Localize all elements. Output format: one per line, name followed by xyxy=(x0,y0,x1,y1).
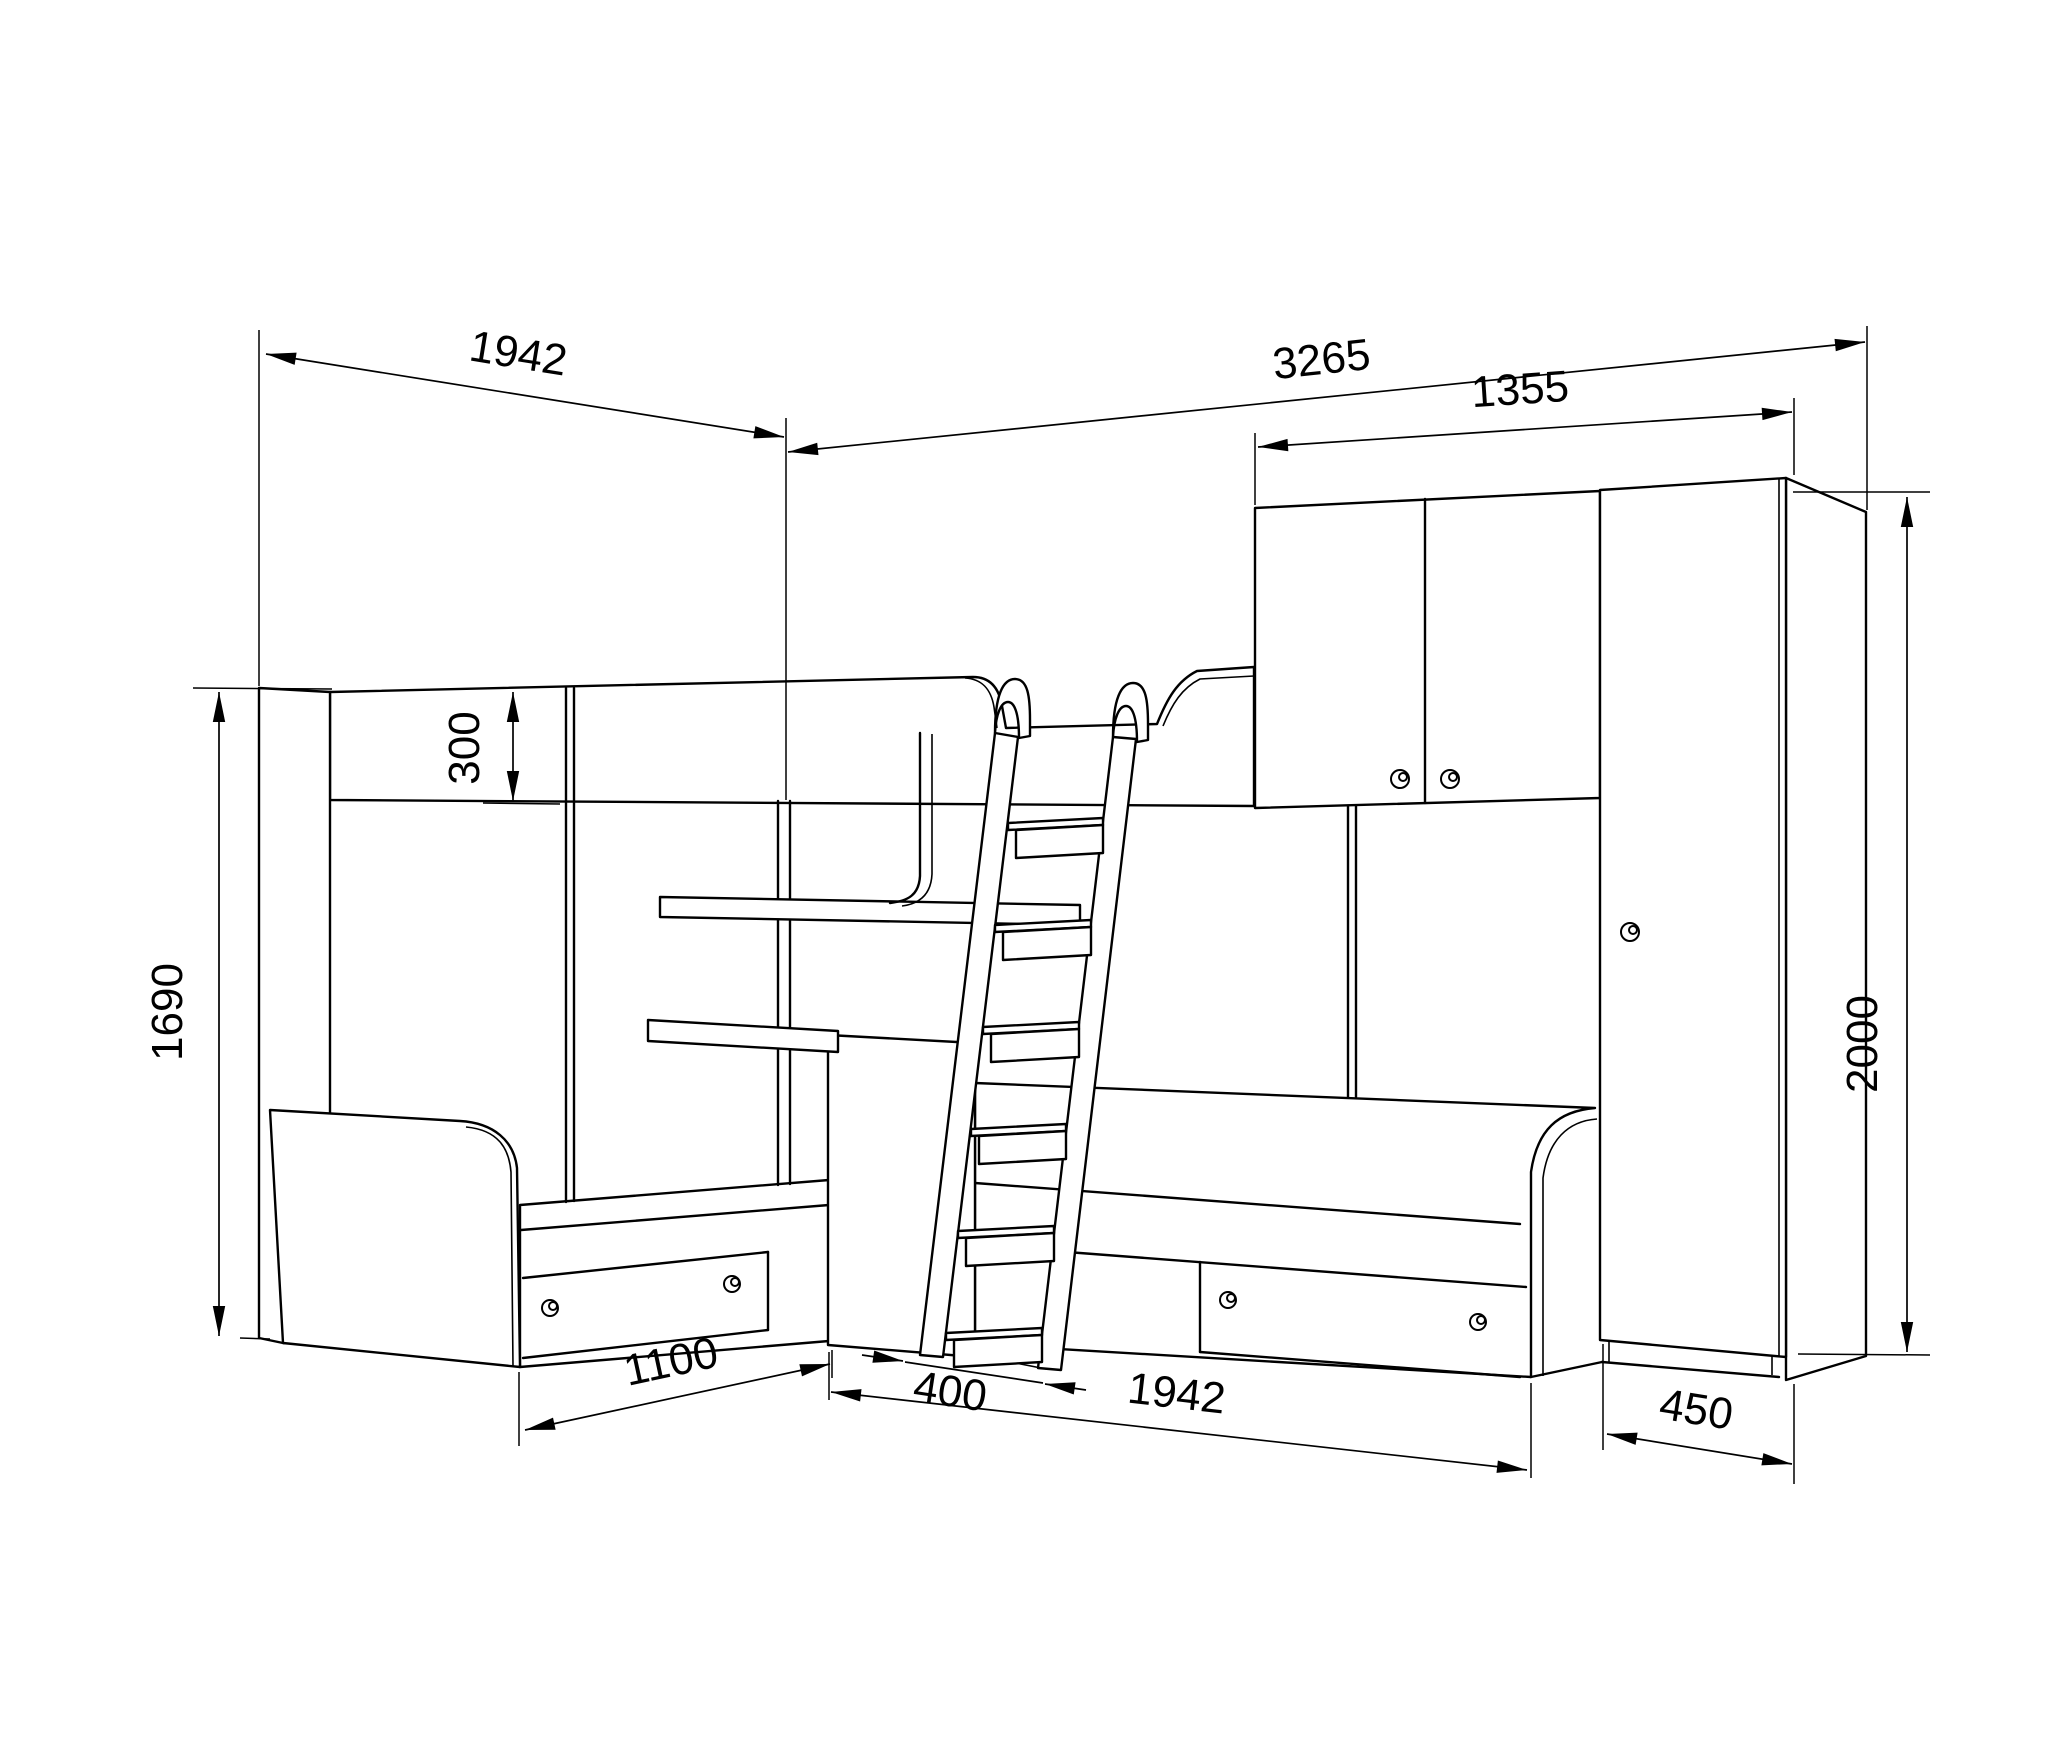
furniture-dimension-diagram: 1942 3265 1355 300 1690 2000 1100 400 19… xyxy=(0,0,2048,1757)
desk-top-board xyxy=(660,897,1080,925)
ladder-step-front xyxy=(966,1233,1054,1266)
ext-line xyxy=(193,688,332,689)
dim-label-right-bed-length: 1942 xyxy=(1125,1364,1228,1424)
dim-label-overall-width: 3265 xyxy=(1270,330,1373,389)
wardrobe-door-handle-inner xyxy=(1629,926,1637,934)
left-bed-drawer-handle-right-inner xyxy=(731,1278,739,1286)
ext-line xyxy=(483,803,560,804)
dim-label-panel-height: 1690 xyxy=(143,963,192,1061)
wardrobe-plinth xyxy=(1602,1362,1779,1377)
ladder-step-front xyxy=(1016,825,1103,858)
dim-arrow-lead-right xyxy=(1045,1384,1086,1390)
left-bed-drawer-handle-left-inner xyxy=(549,1302,557,1310)
dim-label-cabinet-width: 1355 xyxy=(1470,362,1571,417)
left-bed-foot-panel xyxy=(270,1110,520,1367)
overhead-cabinet xyxy=(1255,491,1600,808)
ext-line xyxy=(1798,1354,1930,1355)
right-bed-foot-inner-curve xyxy=(1543,1119,1597,1376)
right-bed-drawer-handle-right-inner xyxy=(1477,1316,1485,1324)
cabinet-left-door-handle-inner xyxy=(1399,773,1407,781)
ladder-step-front xyxy=(979,1131,1066,1164)
ladder-step-front xyxy=(991,1029,1079,1062)
right-bed-drawer-handle-left-inner xyxy=(1227,1294,1235,1302)
dim-label-left-bed-length: 1942 xyxy=(466,322,570,386)
ext-line xyxy=(240,1338,270,1339)
dim-label-wardrobe-depth: 450 xyxy=(1656,1380,1736,1440)
ladder-step-front xyxy=(1003,927,1091,960)
ladder-step-front xyxy=(954,1335,1042,1367)
dim-line-wardrobe-depth xyxy=(1607,1434,1792,1464)
floor-edge-bed-to-wardrobe xyxy=(1531,1362,1602,1377)
dim-label-rail-height: 300 xyxy=(440,711,489,784)
dim-label-ladder-depth: 400 xyxy=(910,1362,990,1421)
dim-label-wardrobe-height: 2000 xyxy=(1838,995,1887,1093)
cabinet-right-door-handle-inner xyxy=(1449,773,1457,781)
desk-lower-shelf xyxy=(648,1020,838,1052)
dim-arrow-lead-left xyxy=(862,1355,903,1361)
blueprint-page: 1942 3265 1355 300 1690 2000 1100 400 19… xyxy=(0,0,2048,1757)
wardrobe-front xyxy=(1600,478,1786,1357)
dim-line-cabinet-width xyxy=(1258,412,1792,447)
wardrobe-side-face xyxy=(1786,478,1866,1380)
